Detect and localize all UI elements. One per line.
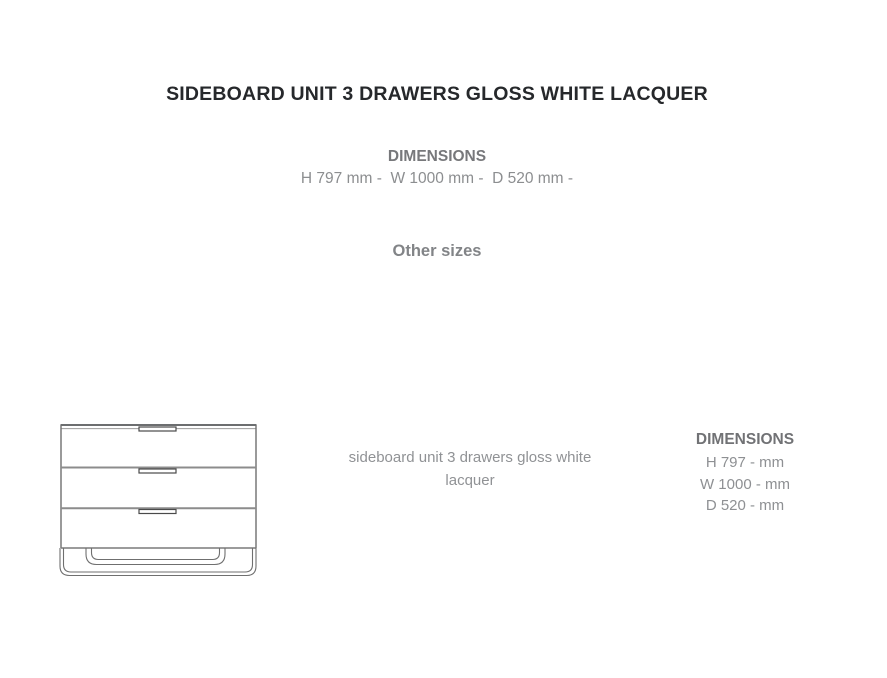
dimension-row-height: H 797 - mm — [645, 452, 845, 474]
drawer-dividers — [61, 468, 256, 509]
drawer-handle-bottom — [139, 510, 176, 514]
dimensions-values: H 797 mm - W 1000 mm - D 520 mm - — [0, 169, 874, 189]
dimension-rows: H 797 - mm W 1000 - mm D 520 - mm — [645, 452, 845, 517]
dimension-row-depth: D 520 - mm — [645, 495, 845, 517]
cabinet-body — [61, 425, 257, 548]
product-description: sideboard unit 3 drawers gloss white lac… — [335, 446, 605, 492]
spec-sheet-page: SIDEBOARD UNIT 3 DRAWERS GLOSS WHITE LAC… — [0, 0, 887, 678]
plinth-base — [60, 548, 256, 576]
drawer-handle-top — [139, 427, 176, 431]
dimensions-heading: DIMENSIONS — [0, 147, 874, 167]
other-sizes-heading: Other sizes — [0, 240, 874, 262]
page-title: SIDEBOARD UNIT 3 DRAWERS GLOSS WHITE LAC… — [0, 83, 874, 105]
dimension-row-width: W 1000 - mm — [645, 474, 845, 496]
dimensions-heading: DIMENSIONS — [645, 430, 845, 450]
other-size-dimensions-block: DIMENSIONS H 797 - mm W 1000 - mm D 520 … — [645, 430, 845, 517]
drawer-handles — [139, 427, 176, 514]
sideboard-drawing — [57, 423, 259, 579]
drawer-handle-middle — [139, 469, 176, 473]
sideboard-line-drawing-svg — [57, 423, 259, 579]
